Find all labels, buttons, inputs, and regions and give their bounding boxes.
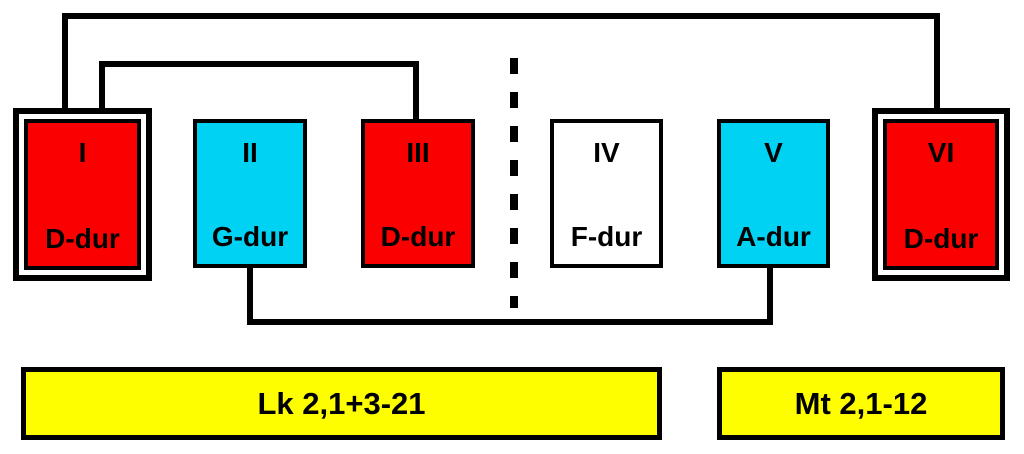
scripture-label-text: Lk 2,1+3-21 bbox=[257, 386, 425, 422]
box-numeral: IV bbox=[593, 138, 619, 169]
box-numeral: V bbox=[764, 138, 783, 169]
connector-i-iii bbox=[99, 61, 419, 108]
section-divider-dashed-line bbox=[510, 58, 518, 308]
movement-box-4: IV F-dur bbox=[550, 119, 663, 268]
movement-box-1: I D-dur bbox=[24, 119, 141, 270]
movement-box-3: III D-dur bbox=[361, 119, 475, 268]
box-numeral: II bbox=[242, 138, 258, 169]
movement-box-2: II G-dur bbox=[193, 119, 307, 268]
movement-box-6-frame: VI D-dur bbox=[872, 108, 1010, 281]
scripture-label-lk: Lk 2,1+3-21 bbox=[21, 367, 662, 440]
movement-box-1-frame: I D-dur bbox=[13, 108, 152, 281]
box-numeral: VI bbox=[928, 138, 954, 169]
movement-box-6: VI D-dur bbox=[883, 119, 999, 270]
box-key-label: F-dur bbox=[571, 222, 643, 253]
box-key-label: D-dur bbox=[381, 222, 456, 253]
scripture-label-text: Mt 2,1-12 bbox=[795, 386, 928, 422]
box-key-label: A-dur bbox=[736, 222, 811, 253]
box-numeral: III bbox=[406, 138, 429, 169]
box-key-label: D-dur bbox=[904, 224, 979, 255]
movement-box-5: V A-dur bbox=[717, 119, 830, 268]
structure-diagram: I D-dur II G-dur III D-dur IV F-dur V A-… bbox=[0, 0, 1024, 454]
scripture-label-mt: Mt 2,1-12 bbox=[717, 367, 1005, 440]
box-key-label: D-dur bbox=[45, 224, 120, 255]
box-numeral: I bbox=[79, 138, 87, 169]
box-key-label: G-dur bbox=[212, 222, 288, 253]
